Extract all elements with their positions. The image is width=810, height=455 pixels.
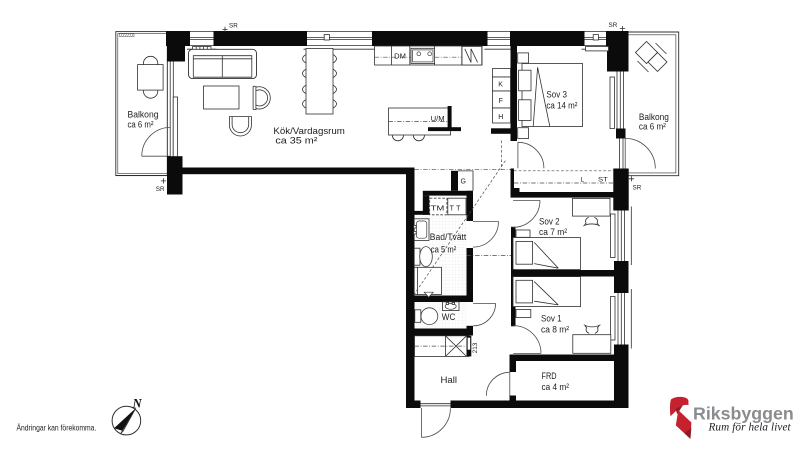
svg-text:SR: SR	[609, 22, 618, 29]
svg-text:ca 35 m²: ca 35 m²	[275, 135, 318, 146]
svg-text:Sov 2: Sov 2	[539, 216, 560, 227]
svg-text:WC: WC	[442, 312, 456, 323]
svg-text:U/M: U/M	[431, 116, 445, 123]
svg-text:SR: SR	[156, 186, 165, 193]
svg-text:G: G	[461, 179, 466, 186]
svg-text:ca 14 m²: ca 14 m²	[546, 100, 578, 111]
svg-text:N: N	[132, 397, 143, 411]
svg-text:ca 5 m²: ca 5 m²	[431, 244, 457, 255]
svg-text:ST: ST	[598, 176, 608, 183]
svg-text:ca 6 m²: ca 6 m²	[639, 122, 667, 133]
svg-text:ca 7 m²: ca 7 m²	[539, 227, 568, 238]
svg-text:SR: SR	[633, 185, 642, 192]
svg-text:Bad/Tvätt: Bad/Tvätt	[430, 232, 467, 243]
svg-text:Rum för hela livet: Rum för hela livet	[708, 422, 792, 434]
svg-text:ca 6 m²: ca 6 m²	[128, 119, 155, 130]
svg-text:Hall: Hall	[441, 375, 458, 386]
svg-text:SR: SR	[229, 23, 238, 30]
svg-text:H: H	[498, 114, 503, 121]
svg-text:Sov 3: Sov 3	[546, 90, 567, 101]
svg-text:F: F	[499, 98, 503, 105]
svg-text:ca 4 m²: ca 4 m²	[542, 382, 570, 393]
svg-text:Sov 1: Sov 1	[541, 314, 562, 325]
svg-text:TM: TM	[431, 205, 445, 212]
svg-text:TT: TT	[450, 205, 463, 212]
svg-text:213: 213	[472, 342, 479, 353]
svg-text:Riksbyggen: Riksbyggen	[693, 403, 794, 423]
svg-text:L: L	[581, 176, 585, 183]
svg-text:Ändringar kan förekomma.: Ändringar kan förekomma.	[17, 424, 97, 433]
svg-text:K: K	[498, 82, 503, 89]
svg-text:DM: DM	[394, 53, 406, 60]
svg-text:ca 8 m²: ca 8 m²	[541, 324, 570, 335]
svg-text:FRD: FRD	[542, 371, 557, 382]
